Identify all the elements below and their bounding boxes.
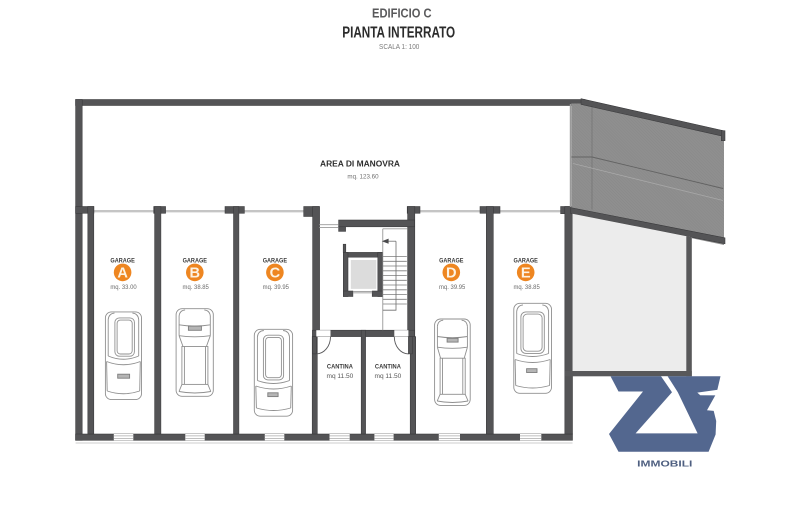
svg-text:A: A <box>117 266 128 282</box>
svg-text:PIANTA INTERRATO: PIANTA INTERRATO <box>342 24 455 41</box>
svg-text:mq. 33.00: mq. 33.00 <box>110 285 137 291</box>
svg-text:AREA DI MANOVRA: AREA DI MANOVRA <box>320 159 400 168</box>
svg-text:mq. 38.85: mq. 38.85 <box>513 285 540 291</box>
svg-text:GARAGE: GARAGE <box>514 258 538 264</box>
svg-text:E: E <box>521 266 531 282</box>
svg-text:D: D <box>446 266 457 282</box>
svg-text:GARAGE: GARAGE <box>183 258 207 264</box>
svg-text:mq. 39.95: mq. 39.95 <box>263 285 290 291</box>
svg-text:GARAGE: GARAGE <box>439 258 463 264</box>
svg-text:IMMOBILI: IMMOBILI <box>637 459 692 468</box>
svg-text:CANTINA: CANTINA <box>375 364 401 371</box>
svg-text:mq 11.50: mq 11.50 <box>375 373 402 380</box>
svg-text:SCALA 1: 100: SCALA 1: 100 <box>379 42 419 51</box>
svg-text:B: B <box>190 266 201 282</box>
svg-text:mq. 38.85: mq. 38.85 <box>183 285 210 291</box>
svg-text:mq. 123.60: mq. 123.60 <box>347 174 378 181</box>
svg-text:GARAGE: GARAGE <box>263 258 287 264</box>
svg-text:GARAGE: GARAGE <box>110 258 134 264</box>
svg-text:CANTINA: CANTINA <box>327 364 353 371</box>
svg-text:mq 11.50: mq 11.50 <box>327 373 354 380</box>
svg-text:mq. 39.95: mq. 39.95 <box>439 285 466 291</box>
svg-text:C: C <box>270 266 281 282</box>
svg-text:EDIFICIO C: EDIFICIO C <box>372 6 432 20</box>
